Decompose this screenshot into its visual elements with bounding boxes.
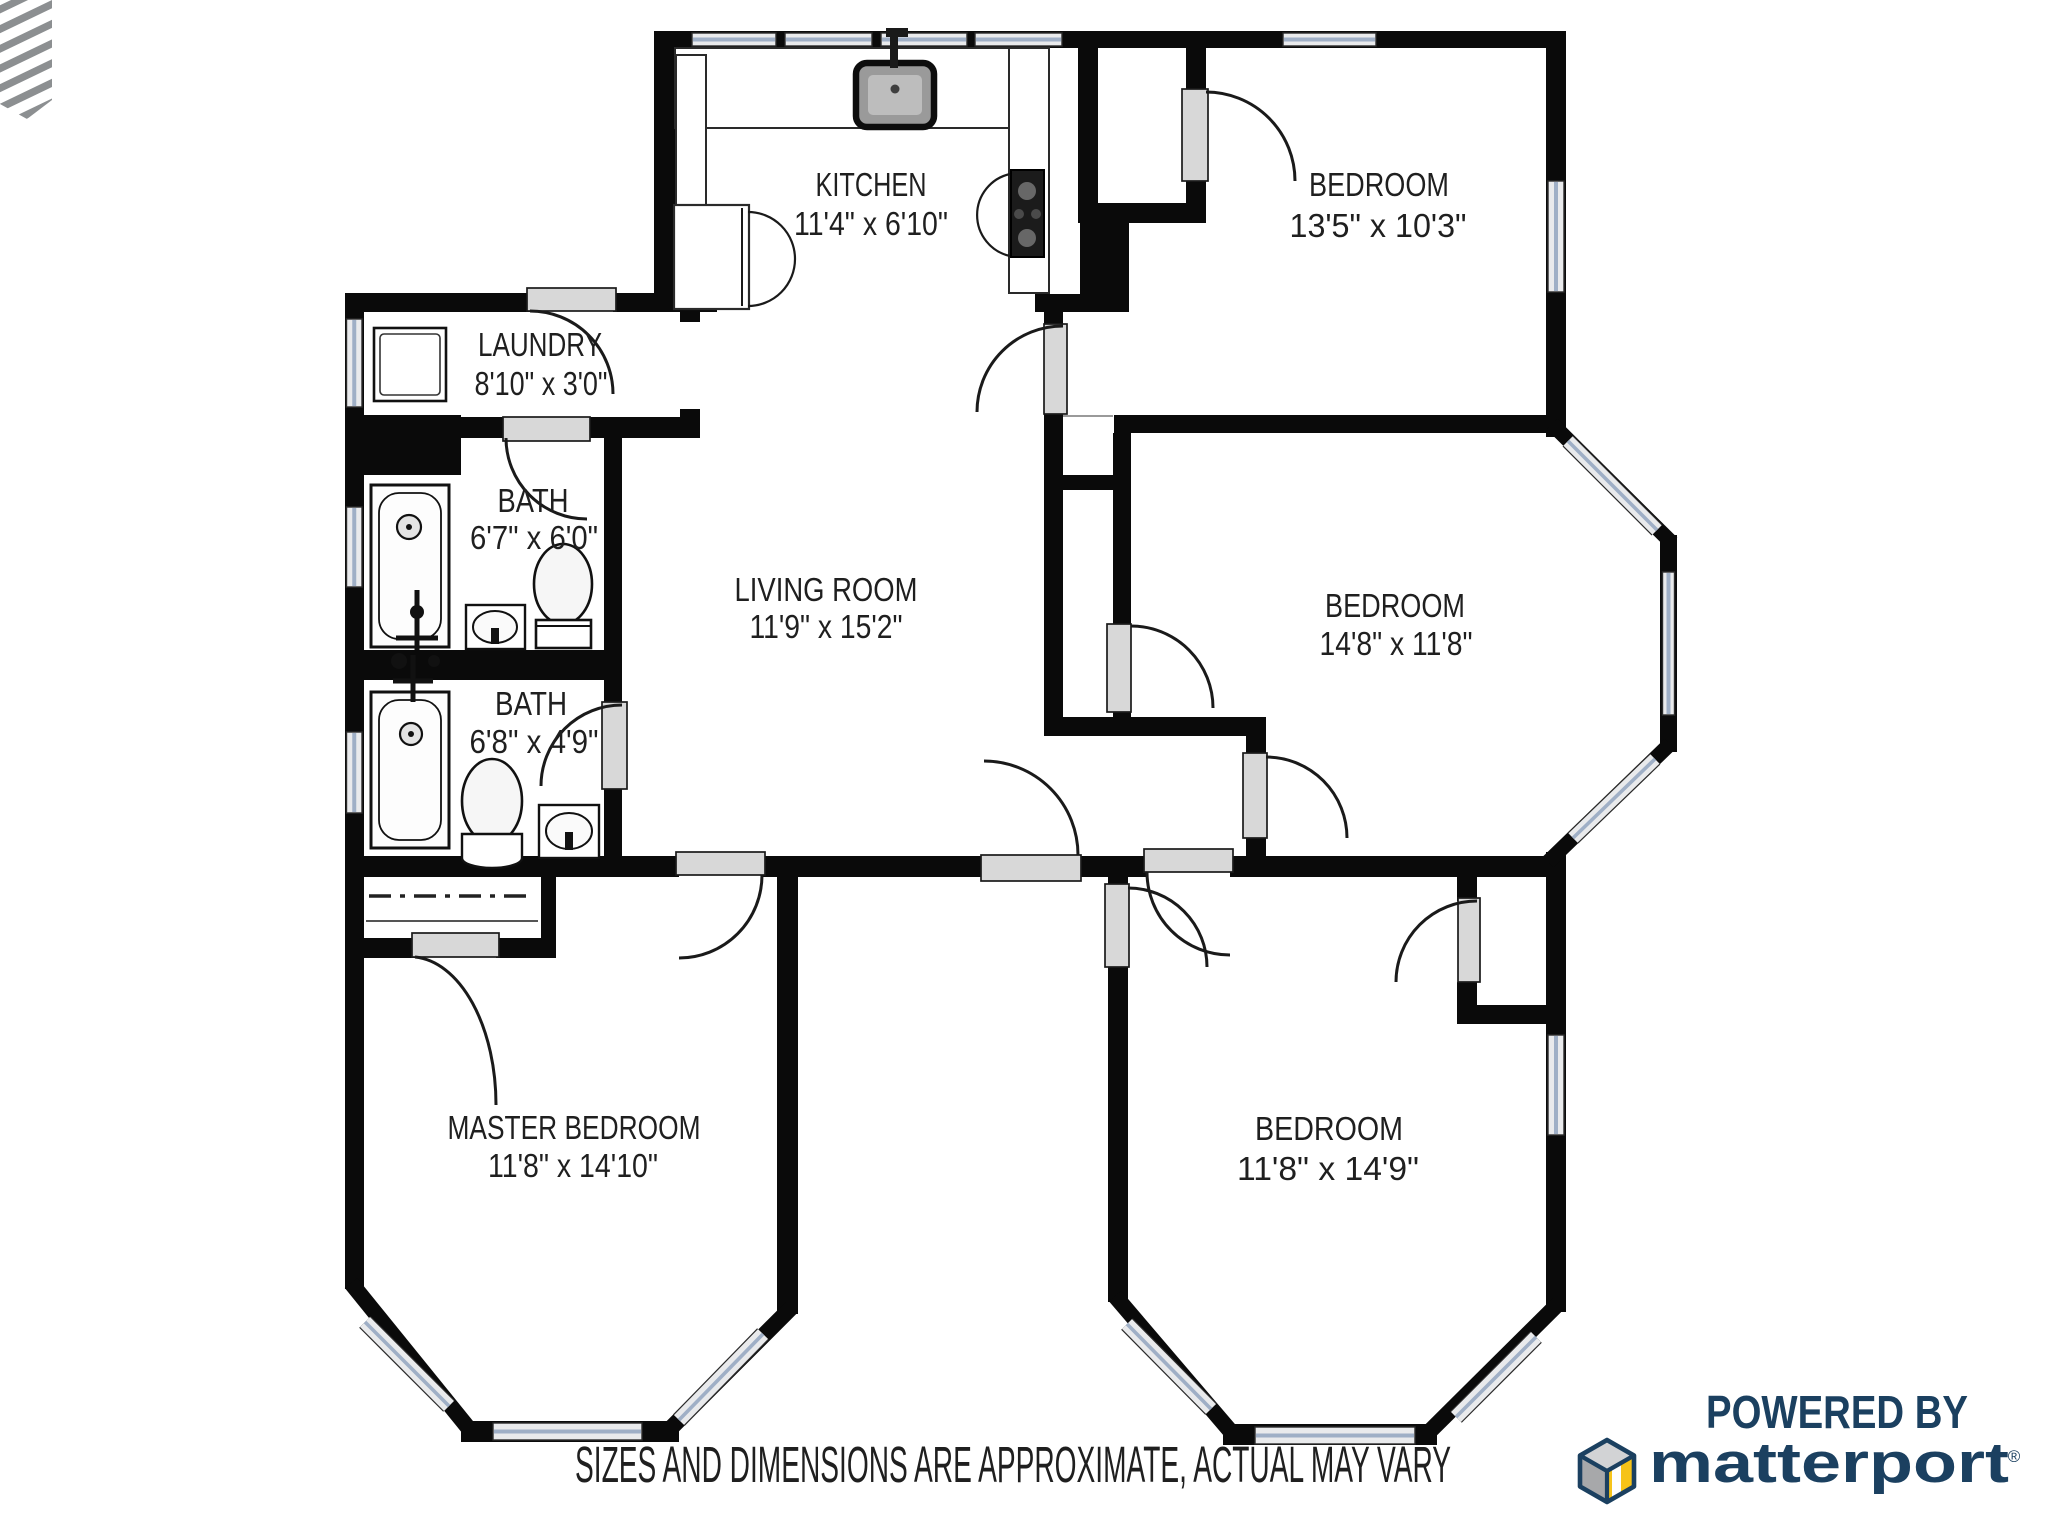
- svg-text:matterport: matterport: [1649, 1431, 2009, 1495]
- svg-text:6'7" x 6'0": 6'7" x 6'0": [470, 519, 598, 556]
- svg-text:BATH: BATH: [498, 482, 569, 519]
- svg-text:13'5" x 10'3": 13'5" x 10'3": [1290, 207, 1467, 244]
- svg-text:11'4" x 6'10": 11'4" x 6'10": [794, 205, 948, 242]
- svg-text:KITCHEN: KITCHEN: [816, 166, 927, 203]
- svg-text:SIZES AND DIMENSIONS ARE APPRO: SIZES AND DIMENSIONS ARE APPROXIMATE, AC…: [575, 1436, 1451, 1493]
- svg-text:LIVING ROOM: LIVING ROOM: [735, 571, 918, 608]
- svg-text:BEDROOM: BEDROOM: [1325, 587, 1465, 624]
- svg-text:BEDROOM: BEDROOM: [1255, 1110, 1403, 1147]
- svg-text:8'10" x 3'0": 8'10" x 3'0": [475, 365, 608, 402]
- svg-text:11'8" x 14'9": 11'8" x 14'9": [1237, 1150, 1419, 1187]
- svg-text:LAUNDRY: LAUNDRY: [478, 326, 602, 363]
- svg-text:MASTER BEDROOM: MASTER BEDROOM: [448, 1109, 701, 1146]
- svg-text:BEDROOM: BEDROOM: [1309, 166, 1449, 203]
- svg-text:14'8" x 11'8": 14'8" x 11'8": [1320, 625, 1473, 662]
- svg-text:®: ®: [2008, 1447, 2021, 1466]
- svg-text:6'8" x 4'9": 6'8" x 4'9": [470, 723, 599, 760]
- svg-text:11'8" x 14'10": 11'8" x 14'10": [488, 1147, 658, 1184]
- svg-text:BATH: BATH: [495, 685, 567, 722]
- svg-text:11'9" x 15'2": 11'9" x 15'2": [750, 608, 903, 645]
